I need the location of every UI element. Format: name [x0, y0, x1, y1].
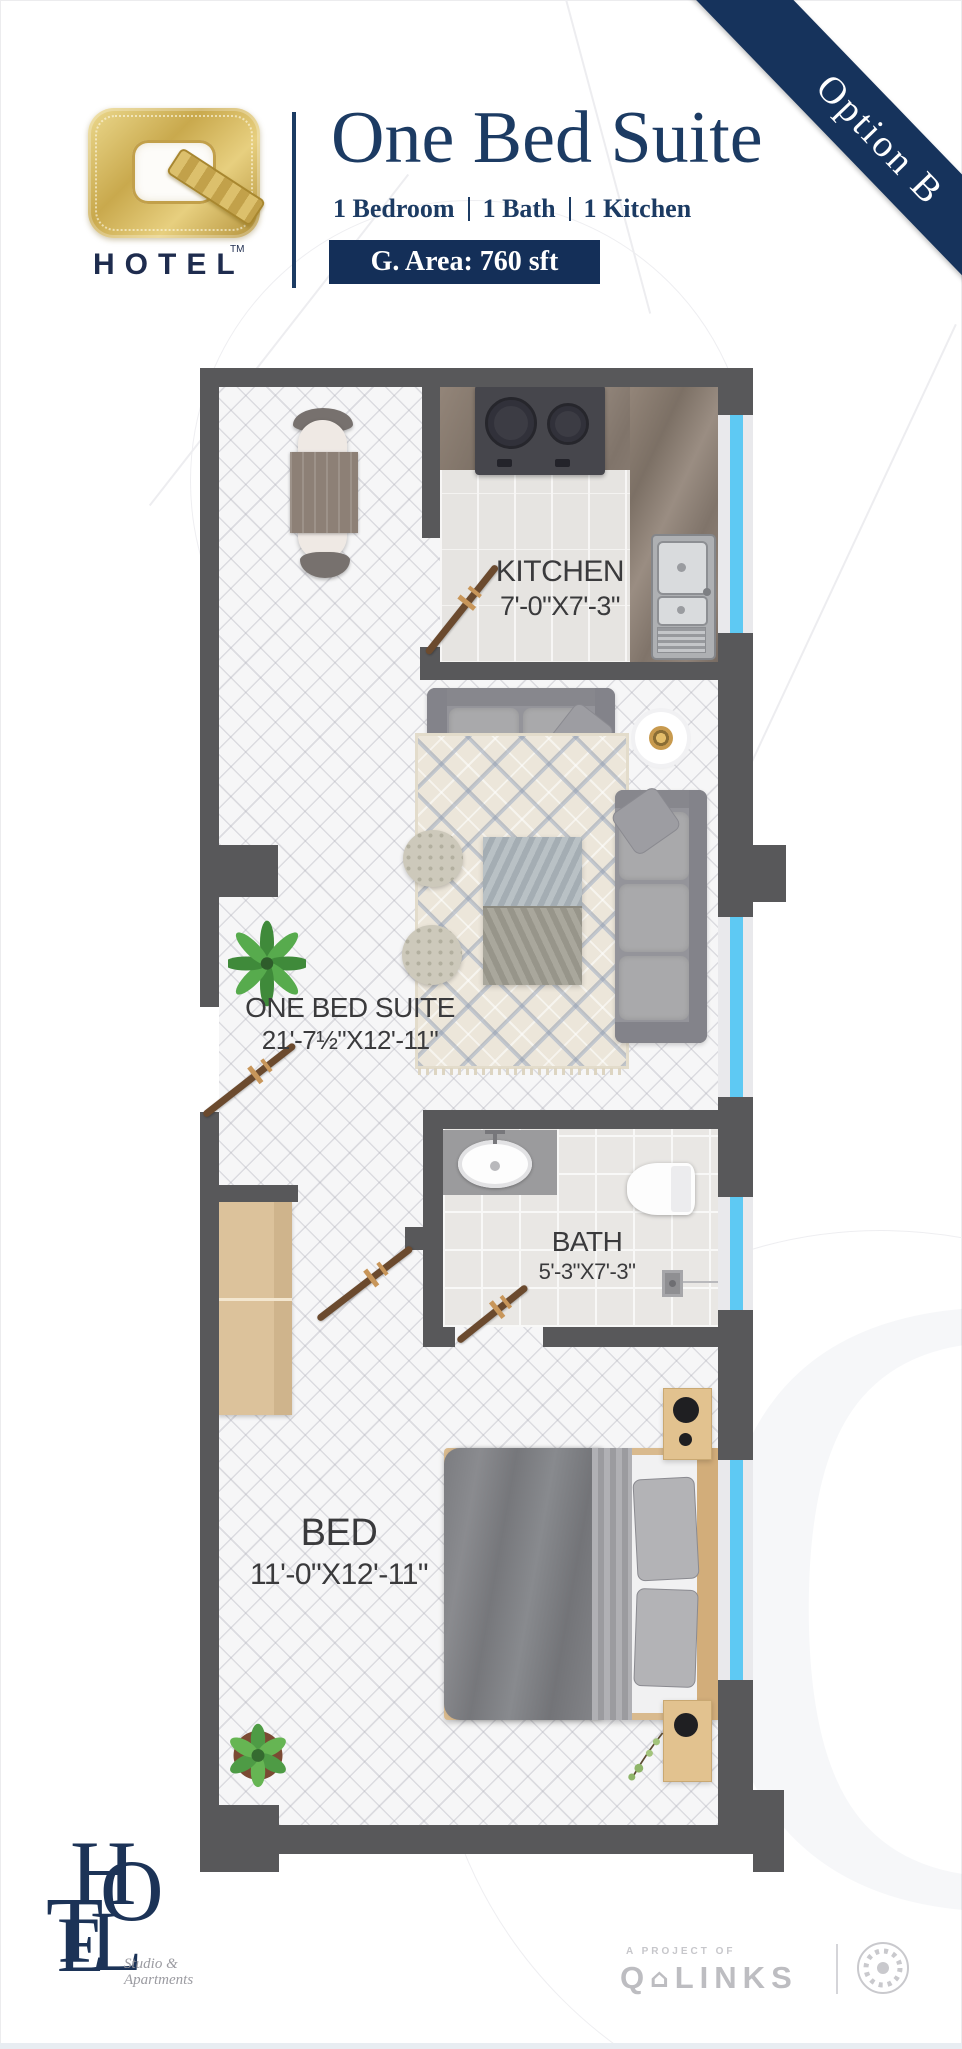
- window-living: [718, 917, 753, 1097]
- room-dims: 7'-0"X7'-3": [450, 590, 670, 622]
- qlinks-links: LINKS: [675, 1960, 798, 1995]
- sectional-sofa: [615, 790, 707, 1043]
- footer-tagline: Studio & Apartments: [124, 1956, 193, 1988]
- wall-kitchen-bottom: [440, 662, 753, 680]
- wall-right-bottom: [718, 1680, 753, 1854]
- option-ribbon-label: Option B: [807, 66, 953, 215]
- faucet-icon: [485, 1130, 505, 1134]
- bed-label: BED 11'-0"X12'-11": [209, 1511, 469, 1593]
- pouf: [402, 925, 462, 985]
- room-name: KITCHEN: [450, 554, 670, 590]
- burner-icon: [485, 397, 537, 449]
- wardrobe: [218, 1202, 292, 1415]
- burner-icon: [547, 403, 589, 445]
- stove: [475, 385, 605, 475]
- room-dims: 21'-7½"X12'-11": [225, 1025, 475, 1056]
- plant-sprig: [623, 1724, 667, 1786]
- lamp-icon: [674, 1713, 698, 1737]
- floorplan-poster: Q HOTEL TM One Bed Suite 1 Bedroom1 Bath…: [0, 0, 962, 2049]
- house-icon: ⌂: [650, 1964, 675, 1994]
- page-title: One Bed Suite: [331, 96, 763, 181]
- wall-stub-living: [200, 845, 278, 897]
- shower-drain: [662, 1270, 683, 1297]
- stove-knob: [497, 459, 512, 467]
- room-summary: 1 Bedroom1 Bath1 Kitchen: [333, 194, 691, 224]
- page-edge-strip: [0, 2043, 962, 2049]
- summary-separator: [468, 197, 470, 221]
- room-name: ONE BED SUITE: [225, 991, 475, 1025]
- window-bath: [718, 1197, 753, 1310]
- brand-name: HOTEL: [93, 248, 233, 282]
- sink-drainboard: [657, 627, 706, 653]
- bed-headboard: [697, 1448, 718, 1720]
- room-dims: 5'-3"X7'-3": [517, 1259, 657, 1285]
- wall-right-bump: [753, 1790, 784, 1872]
- room-dims: 11'-0"X12'-11": [209, 1557, 469, 1593]
- nightstand: [663, 1700, 712, 1782]
- summary-kitchens: 1 Kitchen: [584, 194, 692, 223]
- sectional-cushion: [619, 884, 689, 952]
- wall-right-corner: [718, 368, 753, 415]
- lamp-icon: [673, 1397, 699, 1423]
- summary-separator: [569, 197, 571, 221]
- qlinks-q: Q: [620, 1960, 650, 1995]
- wall-corner-block: [200, 1805, 279, 1872]
- bath-vanity: [443, 1130, 557, 1195]
- floor-plan: KITCHEN 7'-0"X7'-3" ONE BED SUITE 21'-7½…: [200, 368, 753, 1872]
- wall-bottom: [279, 1825, 753, 1854]
- wall-stub-hall: [215, 1185, 298, 1202]
- bed-pillow: [633, 1588, 698, 1688]
- background-line: [735, 324, 957, 796]
- summary-baths: 1 Bath: [483, 194, 556, 223]
- wall-right-bump: [753, 845, 786, 902]
- coffee-table: [483, 837, 582, 985]
- wall-left-upper: [200, 368, 219, 1007]
- potted-plant: [222, 1714, 294, 1794]
- toilet: [627, 1163, 695, 1215]
- kitchen-label: KITCHEN 7'-0"X7'-3": [450, 554, 670, 622]
- wall-kitchen-left: [422, 387, 440, 538]
- sectional-cushion: [619, 956, 689, 1020]
- stove-knob: [555, 459, 570, 467]
- wall-left-lower: [200, 1112, 219, 1805]
- wall-right-column: [718, 1310, 753, 1460]
- wall-bath-top: [423, 1110, 753, 1129]
- project-of-label: A PROJECT OF: [626, 1946, 736, 1957]
- brand-trademark: TM: [230, 244, 244, 255]
- tagline-line: Apartments: [124, 1972, 193, 1988]
- footer-divider: [836, 1944, 838, 1994]
- summary-bedrooms: 1 Bedroom: [333, 194, 455, 223]
- wall-right-column: [718, 1097, 753, 1197]
- pouf: [403, 830, 463, 887]
- wall-bath-bottom-left: [423, 1327, 455, 1347]
- wall-right-column: [718, 633, 753, 917]
- window-kitchen: [718, 415, 753, 633]
- header-divider: [292, 112, 296, 288]
- bed: [444, 1448, 718, 1720]
- room-name: BATH: [517, 1225, 657, 1259]
- bath-sink: [458, 1140, 532, 1188]
- qlinks-logo: Q⌂LINKS: [620, 1960, 798, 1996]
- wall-top: [200, 368, 753, 387]
- q-hotel-logo: [88, 108, 260, 238]
- bed-pillow: [632, 1476, 699, 1581]
- faucet-icon: [703, 588, 711, 596]
- shower-rail: [683, 1281, 718, 1283]
- wall-bath-left: [423, 1110, 443, 1347]
- dining-table-runner: [290, 452, 358, 533]
- nightstand: [663, 1388, 712, 1460]
- table-lamp: [635, 712, 687, 764]
- area-badge: G. Area: 760 sft: [329, 240, 600, 284]
- suite-label: ONE BED SUITE 21'-7½"X12'-11": [225, 991, 475, 1056]
- room-name: BED: [209, 1511, 469, 1557]
- qlinks-emblem-icon: [856, 1941, 910, 1995]
- tagline-line: Studio &: [124, 1956, 193, 1972]
- lamp-icon: [679, 1433, 692, 1446]
- window-bedroom: [718, 1460, 753, 1680]
- bath-label: BATH 5'-3"X7'-3": [517, 1225, 657, 1285]
- bed-blanket: [592, 1448, 632, 1720]
